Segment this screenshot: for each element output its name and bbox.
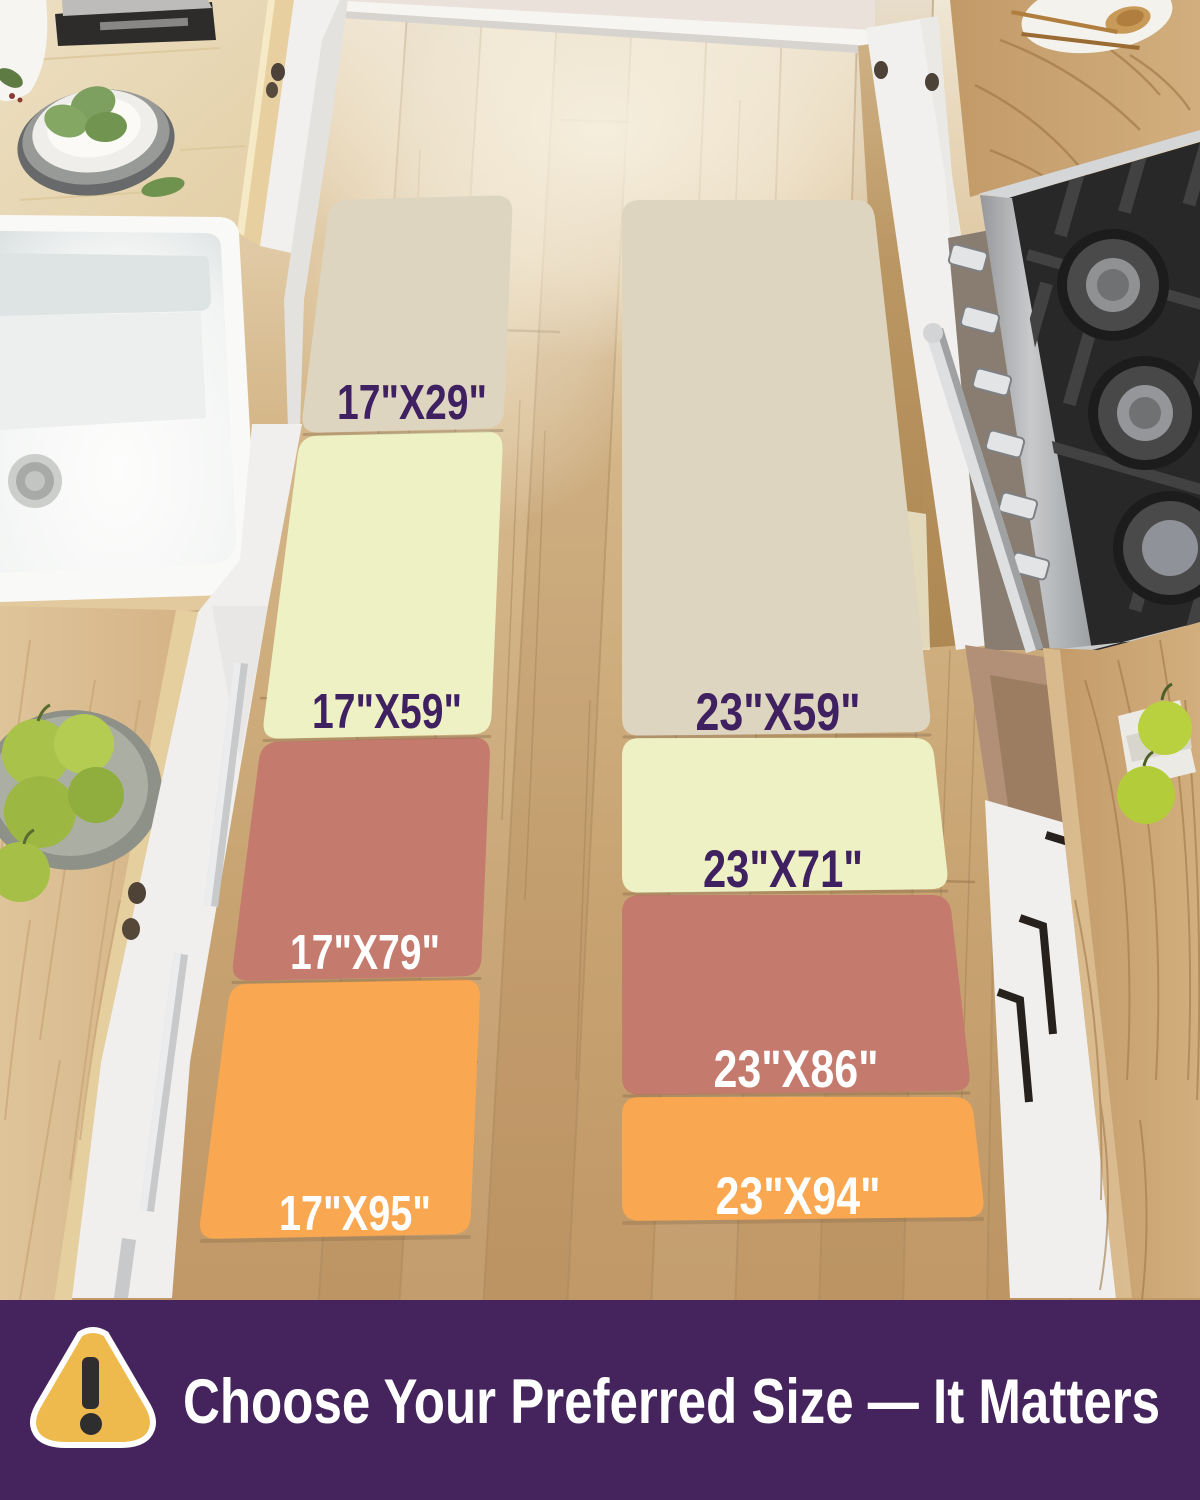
svg-text:17"X59": 17"X59" — [312, 685, 462, 739]
svg-text:17"X79": 17"X79" — [290, 926, 440, 980]
svg-text:17"X29": 17"X29" — [337, 376, 487, 430]
svg-text:23"X71": 23"X71" — [703, 840, 863, 899]
svg-text:17"X95": 17"X95" — [279, 1187, 431, 1241]
svg-text:Choose Your Preferred Size — I: Choose Your Preferred Size — It Matters — [183, 1367, 1160, 1437]
svg-text:23"X86": 23"X86" — [714, 1040, 879, 1099]
svg-text:23"X59": 23"X59" — [696, 683, 861, 742]
svg-text:23"X94": 23"X94" — [716, 1167, 881, 1226]
